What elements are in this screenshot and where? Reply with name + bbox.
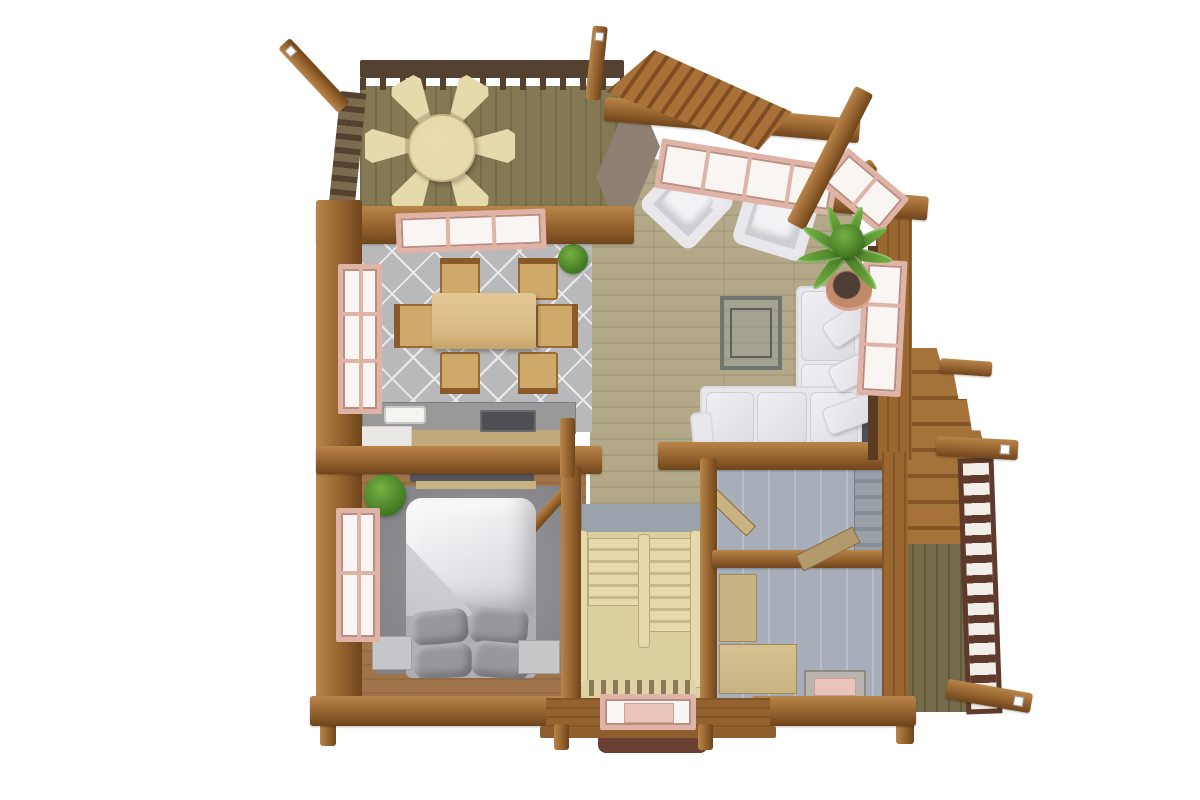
coffee-table <box>720 296 782 370</box>
floorplan-scene <box>0 0 1200 800</box>
wall-bottom-left <box>310 696 566 726</box>
kitchen-stove <box>480 410 536 432</box>
dining-chair <box>440 352 480 392</box>
dining-chair <box>536 304 576 348</box>
wall-living-south <box>658 442 892 470</box>
bedroom-dresser-shelf <box>416 481 536 489</box>
dining-plant <box>558 244 588 274</box>
storage-cabinet-tall <box>719 574 757 642</box>
round-table <box>408 114 476 182</box>
porch-window <box>600 694 696 730</box>
kitchen-sink <box>384 406 426 424</box>
porch-awning <box>598 736 708 753</box>
post-kitchen-end <box>560 418 575 478</box>
porch-post-left <box>554 724 569 750</box>
nightstand-right <box>518 640 560 674</box>
wall-bedroom-right <box>561 466 581 710</box>
dining-table <box>432 293 536 349</box>
bed-pillow <box>410 607 469 647</box>
storage-cabinet-low <box>719 644 797 694</box>
dining-chair <box>518 352 558 392</box>
bed-pillow <box>413 643 473 680</box>
deck-railing-top <box>360 60 624 78</box>
dining-left-window <box>338 264 382 414</box>
stair-flight-left <box>588 538 640 606</box>
porch-post-right <box>698 724 713 750</box>
wall-bottom-right <box>752 696 916 726</box>
potted-fern <box>800 196 890 306</box>
bed <box>406 498 536 678</box>
bedroom-left-window <box>336 508 380 642</box>
wall-hall-right <box>700 458 717 710</box>
balcony-beam-top <box>936 436 1019 460</box>
stair-stringer <box>638 534 650 648</box>
dining-skylight-window <box>395 208 546 253</box>
dining-chair <box>396 304 436 348</box>
balcony-railing <box>958 457 1003 714</box>
wall-right-lower <box>882 452 908 708</box>
corner-post-northwest <box>278 38 350 113</box>
